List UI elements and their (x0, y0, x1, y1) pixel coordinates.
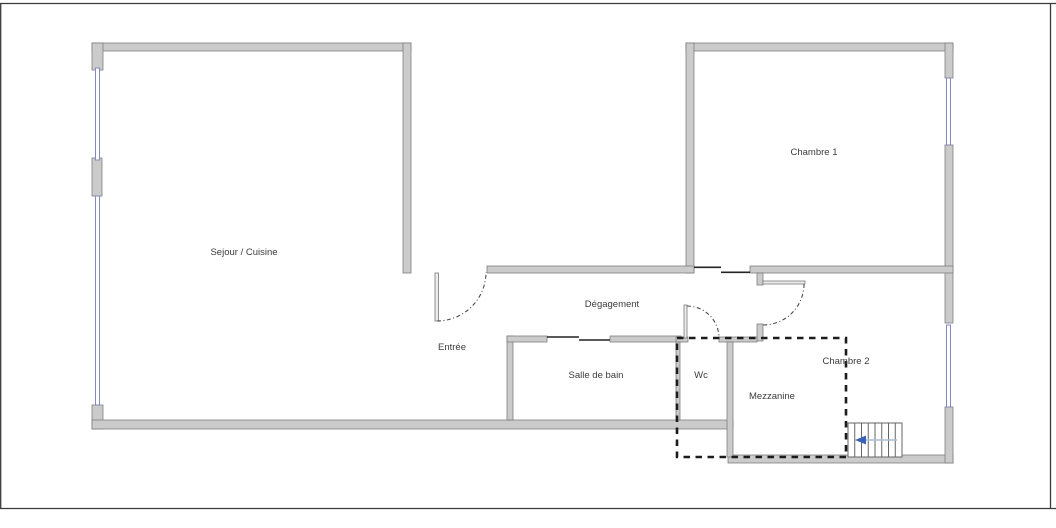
window-sejour-lower (96, 196, 100, 405)
room-label-wc: Wc (694, 370, 708, 381)
wall-salledebain-left (507, 336, 513, 420)
wall-left-pier (92, 158, 102, 196)
wall-right-seg3 (945, 407, 953, 463)
room-label-mezzanine: Mezzanine (749, 391, 795, 402)
wall-salledebain-top-seg1 (507, 336, 547, 342)
room-label-chambre2: Chambre 2 (823, 356, 870, 367)
wall-chambre1-chambre2-divider (750, 266, 953, 273)
room-label-chambre1: Chambre 1 (791, 147, 838, 158)
wall-bottom-main (92, 420, 733, 429)
room-label-sejour-cuisine: Sejour / Cuisine (210, 247, 277, 258)
wall-chambre1-top (686, 43, 953, 51)
floor-plan: Sejour / Cuisine Chambre 1 Dégagement En… (0, 0, 1056, 528)
floor-plan-canvas: Sejour / Cuisine Chambre 1 Dégagement En… (0, 0, 1056, 528)
entrance-door-swing-arc (437, 272, 486, 321)
room-label-degagement: Dégagement (585, 299, 640, 310)
wall-chambre1-left (686, 43, 694, 273)
wall-degagement-top (487, 266, 694, 273)
chambre2-door-leaf (763, 281, 805, 284)
window-chambre1 (947, 78, 951, 145)
window-chambre2 (947, 325, 951, 407)
wall-left-corner-top (92, 43, 103, 70)
wall-right-seg2 (945, 145, 953, 323)
wall-sejour-top (92, 43, 411, 51)
window-sejour-upper (96, 68, 100, 160)
wc-door-leaf (684, 305, 687, 338)
chambre2-door-swing-arc (763, 284, 804, 325)
wall-sejour-right (403, 43, 411, 273)
wc-door-swing-arc (687, 306, 719, 338)
room-label-salle-de-bain: Salle de bain (569, 370, 624, 381)
wall-right-seg1 (945, 43, 953, 78)
sliding-doors (547, 267, 750, 340)
wall-mezzanine-left (727, 342, 733, 457)
entrance-door-leaf (435, 273, 439, 321)
staircase (848, 423, 902, 457)
room-label-entree: Entrée (438, 342, 466, 353)
wall-salledebain-top-seg2 (610, 336, 681, 342)
wall-chambre2-door-jamb-top (757, 273, 763, 285)
room-labels: Sejour / Cuisine Chambre 1 Dégagement En… (210, 147, 869, 402)
